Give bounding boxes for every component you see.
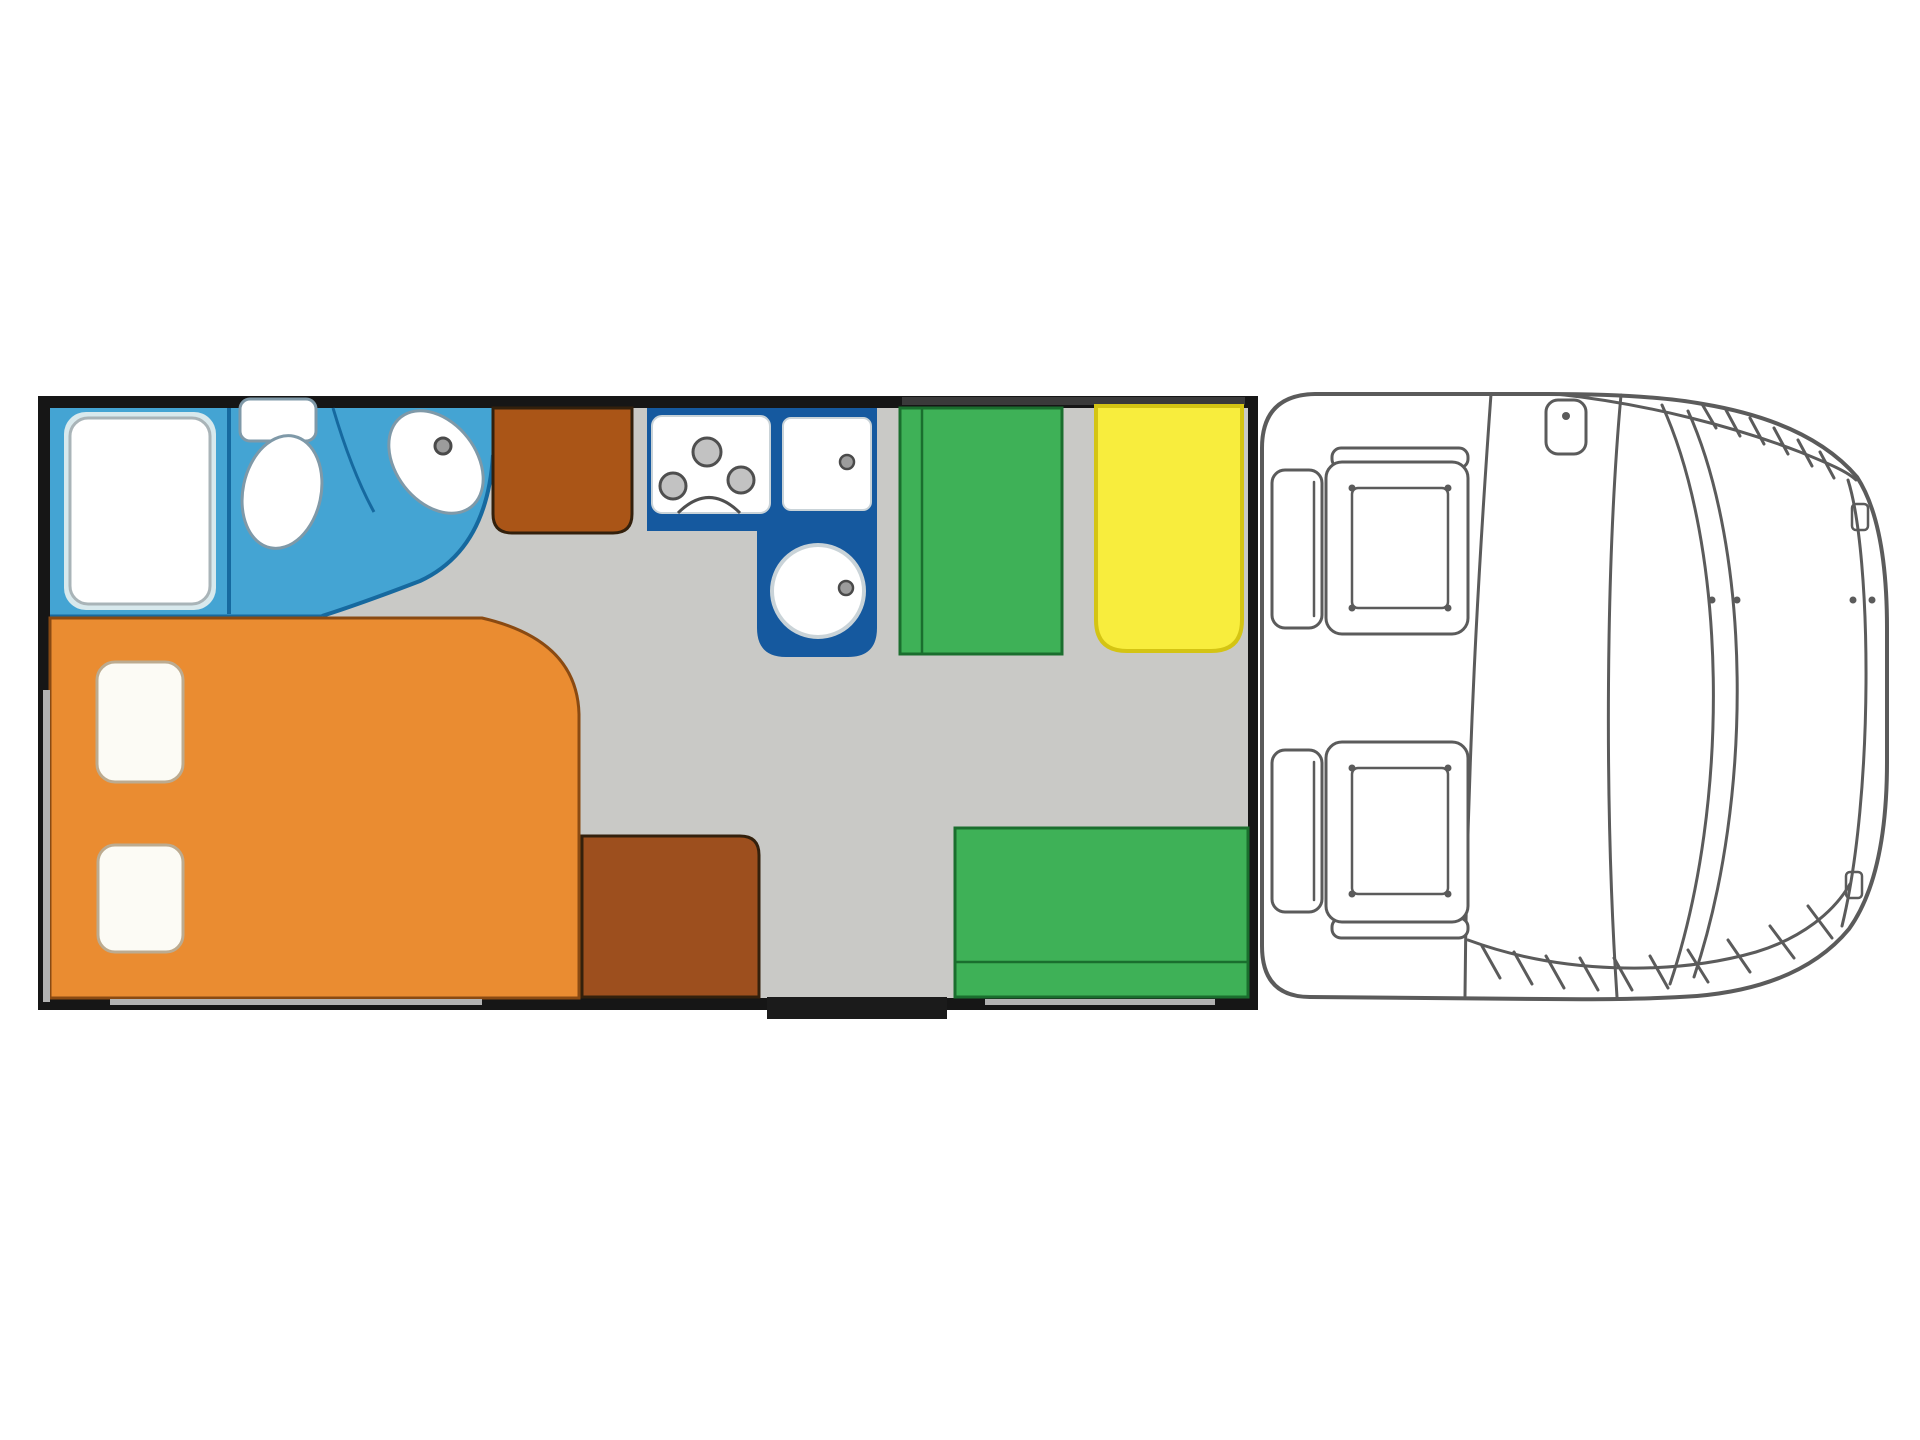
washbasin-drain: [435, 438, 451, 454]
shower-inner: [70, 418, 210, 604]
pillow: [97, 662, 183, 782]
worktop-knob: [840, 455, 854, 469]
burner: [693, 438, 721, 466]
entry-step: [767, 997, 947, 1019]
mirror-dot: [1562, 412, 1570, 420]
french-bed: [50, 618, 579, 998]
floorplan-canvas: [0, 0, 1920, 1440]
passenger-seat: [1272, 742, 1468, 938]
hob-icon: [652, 416, 770, 513]
worktop-surface: [783, 418, 871, 510]
toilet-cistern: [240, 399, 316, 441]
pillow: [98, 845, 183, 952]
motorhome-floorplan-svg: [0, 0, 1920, 1440]
rear-wardrobe: [582, 836, 759, 997]
habitation-area: [38, 392, 1258, 1019]
worktop-icon: [783, 418, 871, 510]
burner: [728, 467, 754, 493]
driver-seat: [1272, 448, 1468, 634]
top-wall-window: [902, 397, 1245, 405]
dinette-bench-front: [900, 408, 1062, 654]
dinette-table: [1096, 406, 1242, 651]
dinette-bench-rear: [955, 828, 1248, 997]
rear-view-mirror-icon: [1546, 400, 1586, 454]
cab: [1262, 394, 1887, 999]
kitchen-sink-icon: [772, 545, 864, 637]
sink-tap: [839, 581, 853, 595]
left-wall-window: [43, 690, 50, 1002]
bottom-wall-window: [985, 999, 1215, 1005]
bottom-wall-window: [110, 999, 482, 1005]
burner: [660, 473, 686, 499]
shower-tray-icon: [64, 412, 216, 610]
front-wardrobe: [493, 408, 632, 533]
